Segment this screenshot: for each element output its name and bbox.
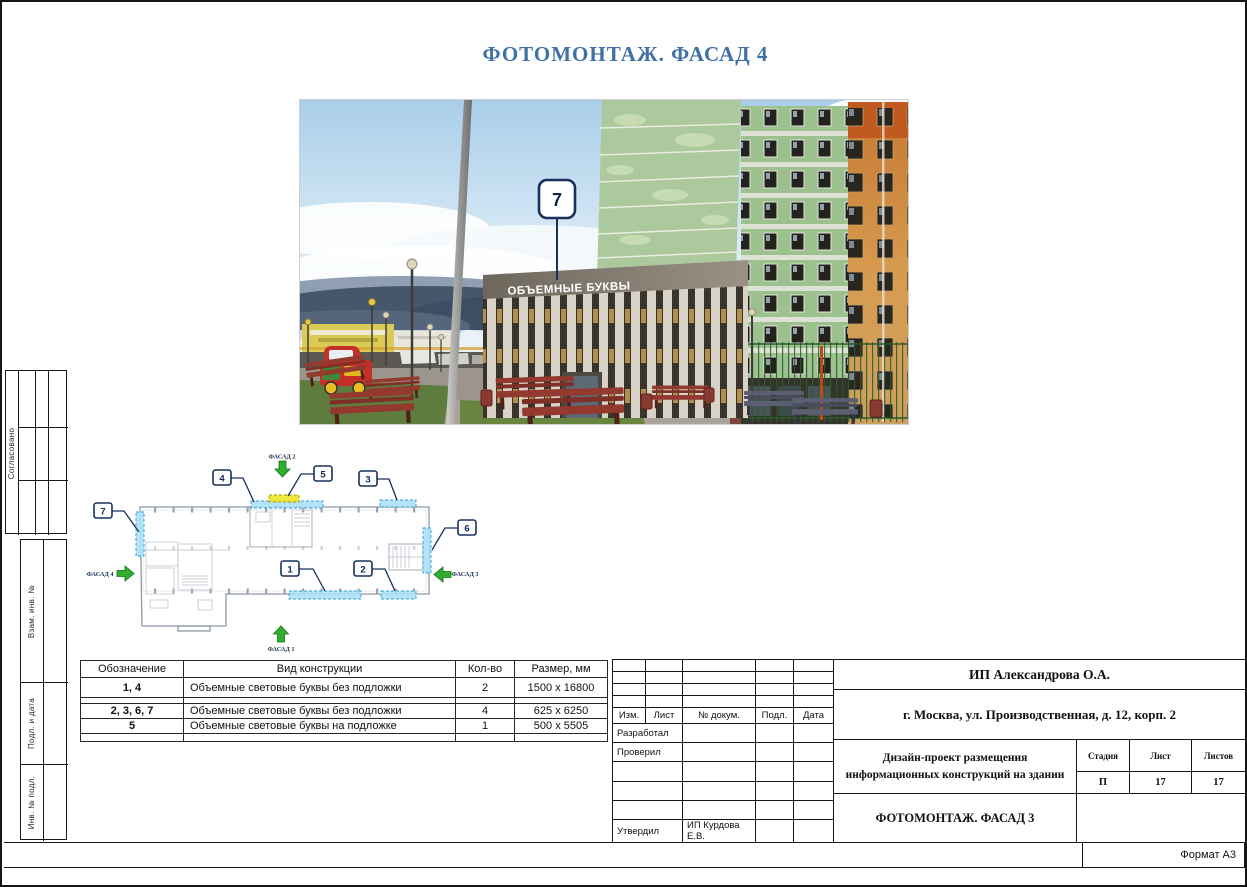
facade2-arrow-icon (275, 461, 290, 477)
empty-cell (683, 801, 755, 819)
empty-cell (646, 684, 682, 695)
empty-cell (756, 672, 793, 683)
strip-4 (251, 501, 323, 508)
developed-label: Разработал (613, 724, 682, 742)
col-data: Дата (794, 708, 833, 723)
facade2-label: ФАСАД 2 (268, 454, 295, 461)
plan-callout-6: 6 (458, 520, 476, 535)
svg-text:3: 3 (365, 475, 370, 486)
sheets-label: Листов (1192, 740, 1245, 771)
cell-mark: 5 (81, 719, 184, 734)
empty-cell (683, 743, 755, 761)
green-endwall-building (597, 100, 741, 282)
empty-cell (613, 684, 645, 695)
empty-cell (683, 782, 755, 800)
col-docnum: № докум. (683, 708, 755, 723)
materials-table: Обозначение Вид конструкции Кол-во Разме… (80, 660, 608, 742)
stage-value: П (1077, 772, 1129, 793)
empty-cell (683, 660, 755, 671)
empty-cell (683, 724, 755, 742)
spacer-cell (515, 734, 608, 742)
cell-type: Объемные световые буквы без подложки (184, 678, 456, 698)
empty-cell (613, 762, 682, 780)
divider (18, 480, 68, 481)
agreed-label: Согласовано (8, 427, 17, 478)
cell-qty: 2 (456, 678, 515, 698)
cell-qty: 4 (456, 704, 515, 719)
strip-5 (269, 495, 299, 502)
empty-cell (756, 696, 793, 707)
sheet-value: 17 (1130, 772, 1191, 793)
col-header: Размер, мм (515, 661, 608, 678)
project-line2: информационных конструкций на здании (846, 767, 1065, 784)
facade4-arrow-icon (117, 566, 134, 581)
project-line1: Дизайн-проект размещения (883, 750, 1028, 767)
format-label: Формат А3 (1180, 849, 1236, 861)
plan-callout-3: 3 (359, 471, 377, 486)
sheet-edge-line (4, 867, 1245, 868)
divider (18, 427, 68, 428)
empty-cell (646, 696, 682, 707)
empty-cell (794, 820, 833, 842)
strip-2 (381, 591, 416, 599)
facade4-label: ФАСАД 4 (86, 571, 114, 578)
empty-cell (756, 684, 793, 695)
empty-cell (683, 672, 755, 683)
cell-size: 500 x 5505 (515, 719, 608, 734)
sheet-label: Лист (1130, 740, 1191, 771)
table-row: 1, 4 Объемные световые буквы без подложк… (81, 678, 608, 698)
checked-label: Проверил (613, 743, 682, 761)
plan-callout-5: 5 (314, 466, 332, 481)
cell-type: Объемные световые буквы на подложке (184, 719, 456, 734)
svg-text:6: 6 (464, 524, 469, 535)
vzam-cell: Взам. инв. № (21, 540, 43, 682)
empty-cell (646, 672, 682, 683)
cell-mark: 1, 4 (81, 678, 184, 698)
podp-cell: Подл. и дата (21, 682, 43, 764)
svg-text:1: 1 (287, 565, 293, 576)
spacer-cell (81, 734, 184, 742)
empty-cell (613, 660, 645, 671)
object-address: г. Москва, ул. Производственная, д. 12, … (834, 690, 1245, 739)
table-row: 5 Объемные световые буквы на подложке 1 … (81, 719, 608, 734)
spacer-cell (184, 734, 456, 742)
empty-cell (756, 801, 793, 819)
podp-label: Подл. и дата (28, 697, 37, 748)
floor-plan-svg: 7 4 5 3 6 1 2 ФАСАД 2 ФАСАД 1 ФАСАД 4 ФА… (80, 440, 484, 666)
strip-6 (423, 528, 431, 573)
divider (48, 371, 49, 535)
cell-qty: 1 (456, 719, 515, 734)
photo-callout-number: 7 (552, 190, 562, 210)
col-header: Кол-во (456, 661, 515, 678)
spacer-cell (456, 734, 515, 742)
empty-cell (794, 660, 833, 671)
cell-size: 625 x 6250 (515, 704, 608, 719)
divider (43, 540, 44, 841)
svg-text:2: 2 (360, 565, 365, 576)
floor-plan: 7 4 5 3 6 1 2 ФАСАД 2 ФАСАД 1 ФАСАД 4 ФА… (80, 440, 484, 666)
facade1-label: ФАСАД 1 (267, 646, 294, 653)
cell-type: Объемные световые буквы без подложки (184, 704, 456, 719)
empty-cell (794, 762, 833, 780)
empty-cell (613, 801, 682, 819)
empty-cell (794, 743, 833, 761)
cell-size: 1500 x 16800 (515, 678, 608, 698)
plan-callout-7: 7 (94, 503, 112, 518)
strip-3 (380, 500, 416, 507)
divider (18, 371, 19, 535)
empty-cell (794, 724, 833, 742)
empty-cell (756, 782, 793, 800)
col-list: Лист (646, 708, 682, 723)
divider (35, 371, 36, 535)
empty-cell (1077, 794, 1245, 842)
empty-cell (794, 684, 833, 695)
title-block-signatures: Изм. Лист № докум. Подл. Дата Разработал… (613, 660, 833, 842)
company-name: ИП Александрова О.А. (834, 660, 1245, 689)
agreed-label-cell: Согласовано (6, 371, 18, 535)
svg-text:7: 7 (100, 507, 105, 518)
agreed-block: Согласовано (5, 370, 67, 534)
title-block-info: ИП Александрова О.А. г. Москва, ул. Прои… (833, 660, 1245, 842)
format-box: Формат А3 (1082, 842, 1245, 868)
approved-by: ИП Курдова Е.В. (683, 820, 755, 842)
empty-cell (756, 724, 793, 742)
empty-cell (756, 820, 793, 842)
sheet-title: ФОТОМОНТАЖ. ФАСАД 3 (834, 794, 1076, 842)
project-name: Дизайн-проект размещения информационных … (834, 740, 1076, 793)
inv-label: Инв. № подл. (28, 776, 37, 829)
frame-bottom-line (4, 842, 1245, 843)
page-title: ФОТОМОНТАЖ. ФАСАД 4 (2, 42, 1247, 67)
empty-cell (613, 782, 682, 800)
empty-cell (756, 762, 793, 780)
facade3-label: ФАСАД 3 (451, 571, 478, 578)
plan-callout-2: 2 (354, 561, 372, 576)
photo-scene: ОБЪЕМНЫЕ БУКВЫ (300, 100, 908, 424)
empty-cell (683, 684, 755, 695)
table-row: 2, 3, 6, 7 Объемные световые буквы без п… (81, 704, 608, 719)
empty-cell (756, 743, 793, 761)
col-header: Обозначение (81, 661, 184, 678)
empty-cell (613, 696, 645, 707)
empty-cell (756, 660, 793, 671)
stage-label: Стадия (1077, 740, 1129, 771)
inv-cell: Инв. № подл. (21, 764, 43, 841)
empty-cell (794, 696, 833, 707)
vzam-label: Взам. инв. № (28, 584, 37, 637)
col-izm: Изм. (613, 708, 645, 723)
empty-cell (683, 696, 755, 707)
svg-text:4: 4 (219, 474, 225, 485)
empty-cell (646, 660, 682, 671)
empty-cell (794, 801, 833, 819)
plan-callout-4: 4 (213, 470, 231, 485)
cell-mark: 2, 3, 6, 7 (81, 704, 184, 719)
svg-text:5: 5 (320, 470, 326, 481)
facade3-arrow-icon (434, 567, 451, 582)
photomontage-image: ОБЪЕМНЫЕ БУКВЫ (299, 99, 909, 425)
title-block: Изм. Лист № докум. Подл. Дата Разработал… (612, 659, 1246, 843)
strip-1 (289, 591, 361, 599)
inventory-block: Взам. инв. № Подл. и дата Инв. № подл. (20, 539, 67, 840)
table-spacer-row (81, 734, 608, 742)
empty-cell (683, 762, 755, 780)
strip-7 (136, 512, 144, 556)
empty-cell (794, 672, 833, 683)
approved-label: Утвердил (613, 820, 682, 842)
col-header: Вид конструкции (184, 661, 456, 678)
empty-cell (794, 782, 833, 800)
plan-callout-1: 1 (281, 561, 299, 576)
facade1-arrow-icon (274, 626, 289, 642)
col-podp: Подл. (756, 708, 793, 723)
empty-cell (613, 672, 645, 683)
drawing-sheet: ФОТОМОНТАЖ. ФАСАД 4 (0, 0, 1247, 887)
table-header-row: Обозначение Вид конструкции Кол-во Разме… (81, 661, 608, 678)
sheets-value: 17 (1192, 772, 1245, 793)
